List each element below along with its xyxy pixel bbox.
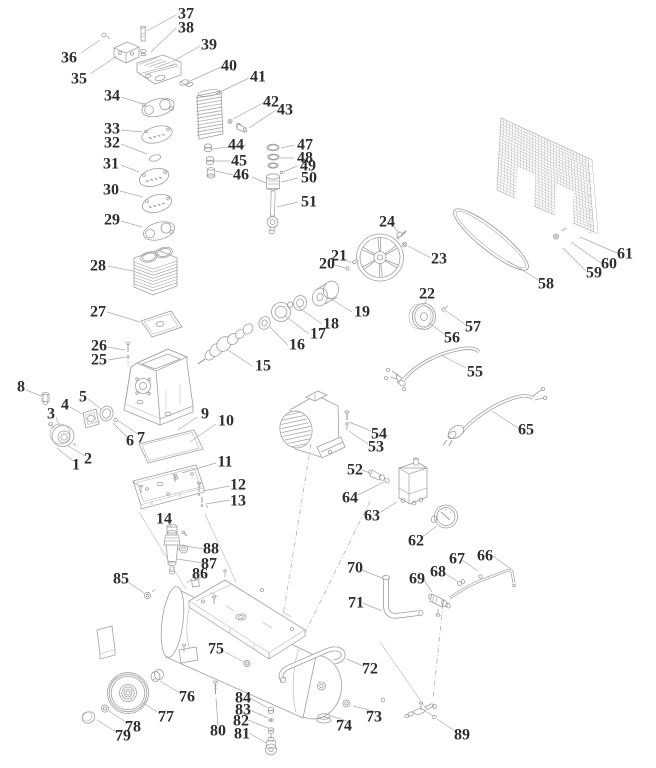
svg-text:55: 55: [467, 364, 483, 381]
svg-text:76: 76: [179, 689, 195, 706]
svg-text:16: 16: [289, 337, 305, 354]
svg-text:72: 72: [362, 661, 378, 678]
svg-text:28: 28: [90, 258, 106, 275]
svg-text:79: 79: [115, 728, 131, 745]
svg-text:85: 85: [113, 571, 129, 588]
svg-text:12: 12: [230, 477, 246, 494]
svg-text:51: 51: [301, 194, 317, 211]
svg-text:62: 62: [408, 533, 424, 550]
svg-text:6: 6: [126, 433, 134, 450]
svg-text:15: 15: [255, 358, 271, 375]
svg-text:61: 61: [617, 246, 633, 263]
svg-text:34: 34: [104, 88, 120, 105]
svg-text:8: 8: [17, 379, 25, 396]
svg-text:44: 44: [228, 137, 244, 154]
svg-text:32: 32: [104, 135, 120, 152]
svg-text:87: 87: [201, 556, 217, 573]
svg-text:50: 50: [301, 170, 317, 187]
svg-text:7: 7: [137, 430, 145, 447]
svg-text:71: 71: [348, 595, 364, 612]
svg-text:10: 10: [218, 413, 234, 430]
svg-text:64: 64: [342, 490, 358, 507]
svg-text:4: 4: [61, 397, 69, 414]
svg-text:38: 38: [178, 20, 194, 37]
svg-text:25: 25: [91, 352, 107, 369]
svg-text:89: 89: [454, 727, 470, 744]
svg-text:31: 31: [103, 156, 119, 173]
svg-text:2: 2: [84, 451, 92, 468]
svg-text:60: 60: [601, 256, 617, 273]
svg-text:54: 54: [371, 426, 387, 443]
svg-text:5: 5: [79, 389, 87, 406]
svg-text:69: 69: [409, 571, 425, 588]
svg-text:3: 3: [47, 406, 55, 423]
svg-text:65: 65: [518, 422, 534, 439]
svg-text:35: 35: [71, 71, 87, 88]
svg-text:77: 77: [158, 709, 174, 726]
svg-text:41: 41: [250, 69, 266, 86]
svg-text:52: 52: [347, 462, 363, 479]
svg-text:19: 19: [354, 304, 370, 321]
svg-text:68: 68: [430, 564, 446, 581]
svg-text:14: 14: [156, 511, 172, 528]
svg-text:18: 18: [323, 316, 339, 333]
svg-text:21: 21: [331, 248, 347, 265]
svg-text:36: 36: [61, 50, 77, 67]
svg-text:13: 13: [230, 493, 246, 510]
svg-text:67: 67: [449, 551, 465, 568]
svg-text:43: 43: [277, 102, 293, 119]
svg-text:22: 22: [419, 286, 435, 303]
svg-text:27: 27: [90, 304, 106, 321]
svg-text:80: 80: [210, 723, 226, 740]
svg-text:40: 40: [221, 58, 237, 75]
svg-text:74: 74: [336, 718, 352, 735]
svg-text:75: 75: [208, 641, 224, 658]
svg-text:63: 63: [364, 508, 380, 525]
svg-text:30: 30: [103, 182, 119, 199]
svg-text:11: 11: [217, 454, 232, 471]
svg-text:23: 23: [431, 251, 447, 268]
svg-text:59: 59: [586, 265, 602, 282]
svg-text:84: 84: [235, 690, 251, 707]
svg-text:57: 57: [465, 319, 481, 336]
svg-text:29: 29: [104, 212, 120, 229]
svg-text:66: 66: [477, 548, 493, 565]
svg-text:58: 58: [538, 276, 554, 293]
svg-text:9: 9: [201, 406, 209, 423]
svg-text:73: 73: [366, 709, 382, 726]
svg-text:70: 70: [347, 560, 363, 577]
svg-text:56: 56: [444, 330, 460, 347]
svg-text:1: 1: [72, 457, 80, 474]
svg-text:46: 46: [233, 167, 249, 184]
svg-text:39: 39: [201, 37, 217, 54]
svg-text:88: 88: [203, 541, 219, 558]
svg-text:24: 24: [379, 214, 395, 231]
